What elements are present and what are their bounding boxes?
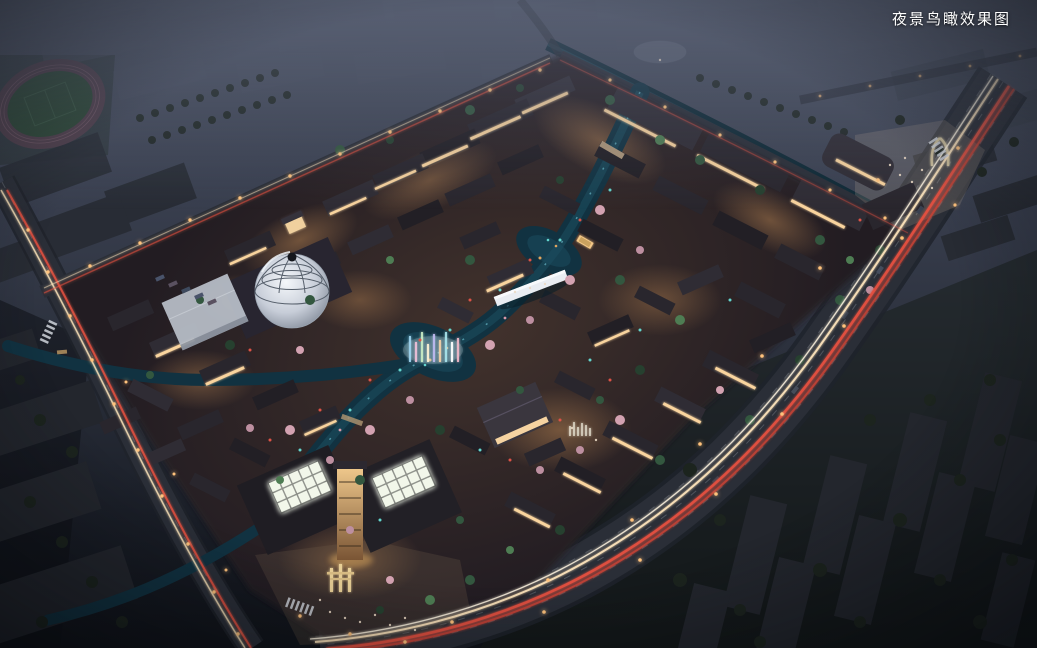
scene-canvas: [0, 0, 1037, 648]
vignette: [0, 0, 1037, 648]
night-aerial-rendering: 夜景鸟瞰效果图: [0, 0, 1037, 648]
caption-night-aerial: 夜景鸟瞰效果图: [892, 9, 1011, 30]
